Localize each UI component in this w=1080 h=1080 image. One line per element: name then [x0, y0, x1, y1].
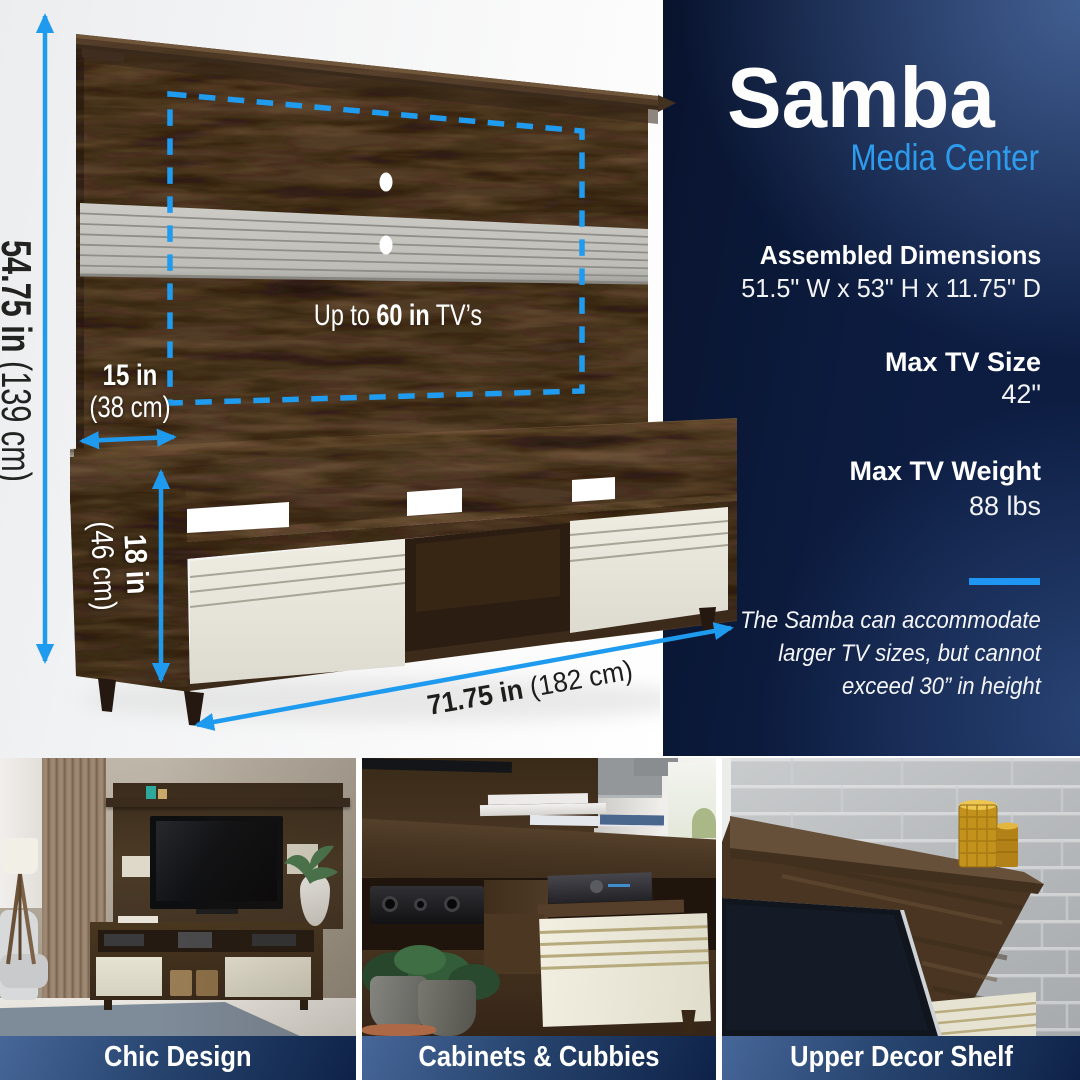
svg-text:Up to 60 in TV’s: Up to 60 in TV’s: [314, 298, 482, 331]
